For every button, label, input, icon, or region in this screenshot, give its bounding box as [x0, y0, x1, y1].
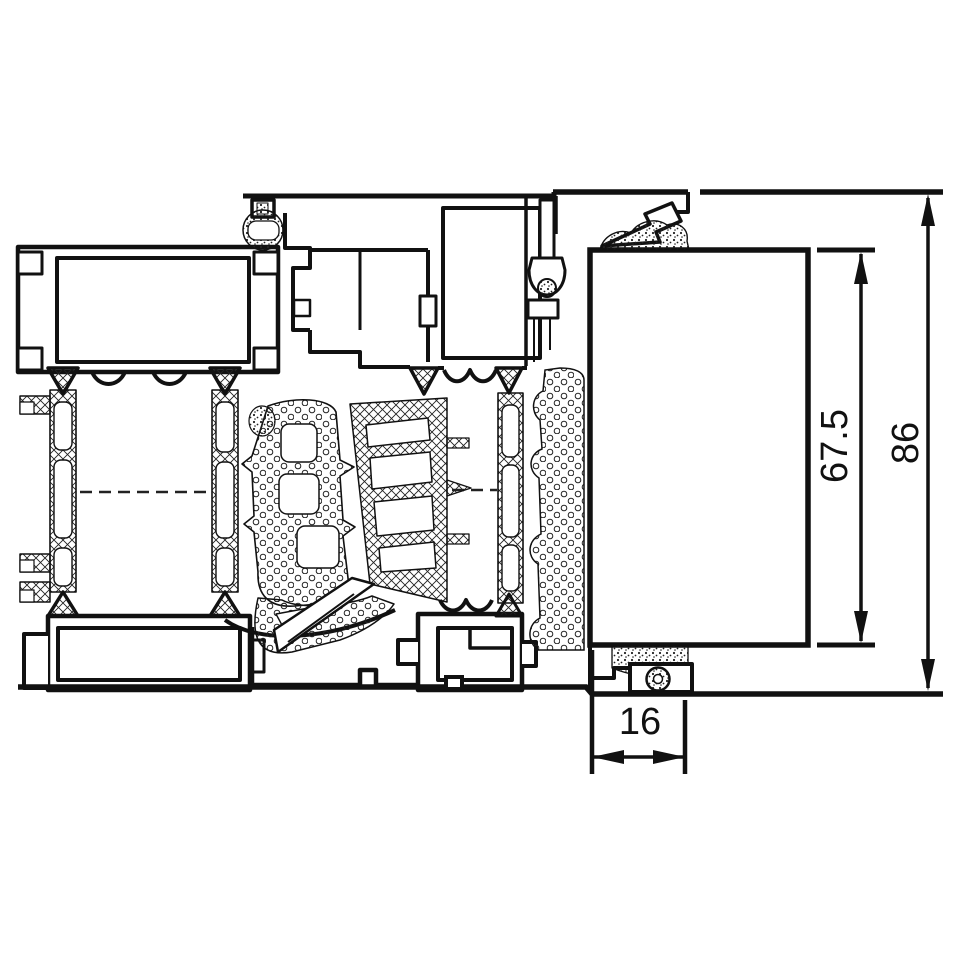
drawing-canvas: 86 67.5 16	[0, 0, 960, 960]
dim-67-label: 67.5	[814, 409, 856, 483]
dim-16-label: 16	[619, 701, 661, 743]
glass-unit	[590, 250, 808, 688]
sash-bulb-gasket	[243, 210, 283, 250]
dim-86-label: 86	[885, 422, 927, 464]
profile-section-drawing: 86 67.5 16	[0, 0, 960, 960]
bead-roll-gasket	[538, 279, 556, 297]
